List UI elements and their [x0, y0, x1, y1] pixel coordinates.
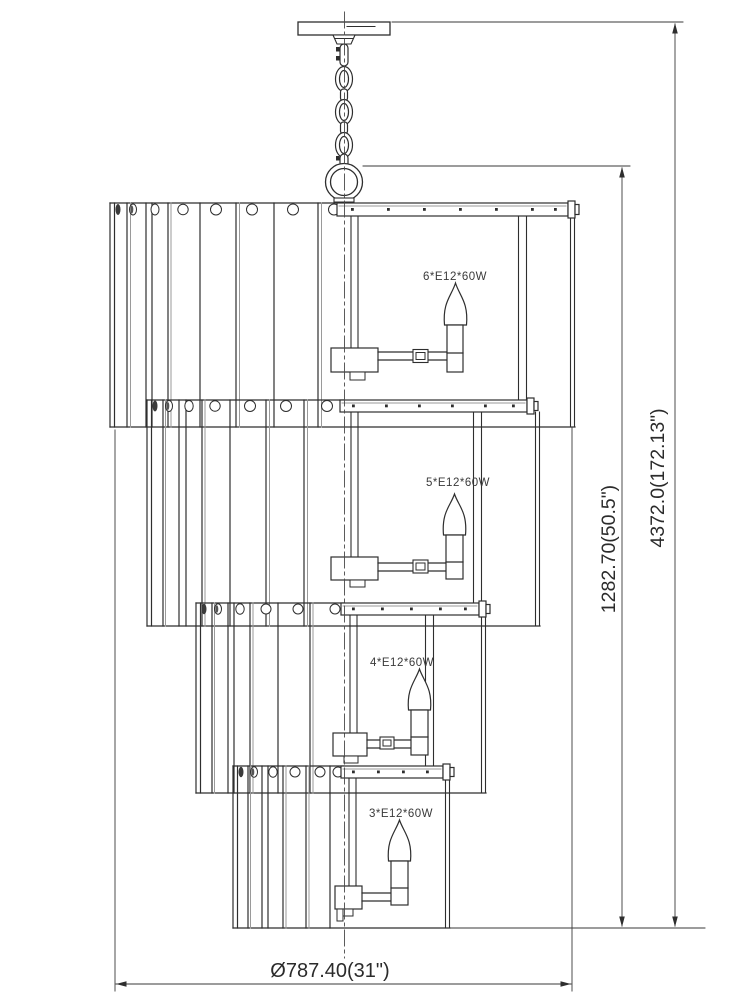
dimension-fixture-height-text: 1282.70(50.5") [598, 485, 620, 613]
tier-1-panel-holes [116, 204, 340, 215]
tier-4-frame-band [341, 764, 454, 780]
tier-1-stem [351, 216, 358, 348]
tier-4-bulb [388, 820, 411, 861]
tier-4-stem [349, 778, 356, 886]
tier-2-bulb [443, 494, 466, 535]
tier-2-stem [351, 412, 358, 557]
hanging-chain [336, 44, 353, 167]
tier-2-candle-socket [446, 535, 463, 579]
tier-4-panel-holes [239, 767, 344, 777]
dimension-overall-height-text: 4372.0(172.13") [647, 408, 669, 547]
tier-3-candle-socket [411, 710, 428, 755]
tier-2-arm-hub [331, 557, 378, 580]
tier-2-lamp-arm [378, 563, 446, 571]
tier-3-arm-hub [333, 733, 367, 756]
tier-1-frame-band [337, 201, 579, 218]
dimension-diameter-text: Ø787.40(31") [270, 960, 389, 982]
tier-3-panel-holes [202, 604, 341, 614]
tier-1-support-rods [519, 216, 527, 402]
dimension-overall-height [672, 23, 678, 927]
lamp-label-tier-2: 5*E12*60W [426, 477, 490, 489]
dimension-diameter [116, 981, 571, 987]
technical-drawing-canvas: 6*E12*60W 5*E12*60W 4*E12*60W 3*E12*60W [0, 0, 750, 1000]
lamp-label-tier-1: 6*E12*60W [423, 271, 487, 283]
tier-4-candle-socket [391, 861, 408, 905]
tier-2-support-rods [474, 412, 482, 605]
lamp-label-tier-3: 4*E12*60W [370, 657, 434, 669]
ceiling-plate [298, 22, 390, 35]
tier-3-bulb [408, 669, 431, 710]
tier-2-frame-band [340, 398, 538, 414]
tier-1-candle-socket [447, 325, 463, 372]
tier-3-stem [350, 615, 357, 733]
chain-link-hook [340, 44, 348, 66]
tier-1-panels [110, 203, 575, 427]
tier-1-arm-hub [331, 348, 378, 372]
lamp-label-tier-4: 3*E12*60W [369, 808, 433, 820]
tier-4-lamp [335, 820, 411, 921]
tier-4-lamp-arm [362, 893, 391, 901]
mounting-nut [333, 35, 355, 44]
tier-3-lamp [333, 669, 431, 763]
tier-3-frame-band [341, 601, 490, 617]
chandelier-elevation-drawing: 6*E12*60W 5*E12*60W 4*E12*60W 3*E12*60W [0, 0, 750, 1000]
tier-1-bulb [444, 283, 467, 325]
hanging-ring [326, 164, 363, 201]
tier-4-arm-hub [335, 886, 362, 909]
